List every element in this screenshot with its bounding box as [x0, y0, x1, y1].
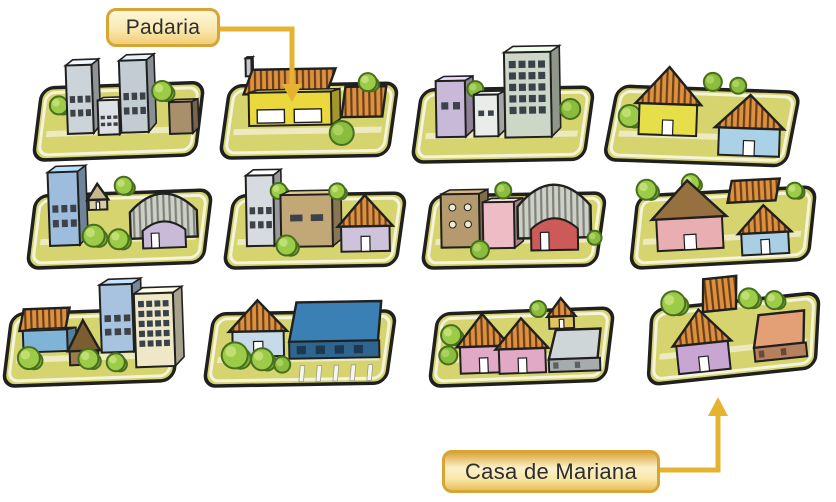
tree-illustration: [329, 183, 347, 200]
bush-illustration: [330, 121, 354, 145]
tree-illustration: [359, 73, 379, 92]
tree-illustration: [636, 179, 659, 200]
bush-illustration: [587, 231, 601, 245]
tower-illustration: [134, 286, 185, 367]
casa-de-mariana-arrow: [658, 415, 718, 470]
tower-illustration: [504, 46, 561, 138]
box-illustration: [548, 328, 602, 372]
tower-illustration: [246, 169, 283, 246]
city-block-3: [410, 45, 595, 162]
tree-illustration: [738, 287, 762, 310]
tower-illustration: [119, 54, 157, 133]
city-blocks-grid: [0, 45, 827, 386]
tree-illustration: [786, 182, 805, 199]
tower-illustration: [441, 189, 489, 247]
roof-illustration: [726, 178, 780, 202]
casa-de-mariana-label: Casa de Mariana: [442, 450, 660, 493]
bush-illustration: [730, 77, 747, 94]
box-illustration: [751, 310, 809, 361]
bush-illustration: [704, 73, 723, 92]
padaria-label: Padaria: [106, 8, 220, 47]
neighborhood-illustration: [0, 0, 836, 502]
city-block-11: [426, 296, 616, 386]
tower-illustration: [474, 91, 506, 137]
city-block-10: [202, 298, 397, 386]
tower-illustration: [169, 99, 199, 134]
neighborhood-figure: Padaria Casa de Mariana: [0, 0, 836, 502]
roof-illustration: [699, 276, 739, 312]
bush-illustration: [560, 99, 580, 119]
bush-illustration: [495, 182, 511, 198]
bush-illustration: [274, 357, 290, 373]
city-block-4: [604, 65, 801, 166]
city-block-1: [30, 52, 207, 160]
casa-de-mariana-block: [638, 267, 827, 384]
tree-illustration: [764, 290, 786, 310]
house-illustration: [650, 178, 728, 251]
tower-illustration: [65, 59, 101, 134]
bush-illustration: [471, 241, 489, 259]
city-block-7: [420, 181, 607, 269]
tree-illustration: [660, 290, 689, 317]
house-illustration: [547, 298, 576, 329]
city-block-5: [24, 161, 215, 268]
house-illustration: [635, 66, 703, 136]
bush-illustration: [439, 346, 458, 365]
bush-illustration: [530, 301, 547, 318]
city-block-8: [626, 168, 820, 269]
city-block-9: [0, 277, 185, 387]
casa-de-mariana-arrowhead-icon: [708, 397, 728, 416]
box-illustration: [288, 301, 382, 359]
house-illustration: [87, 183, 109, 210]
tree-illustration: [114, 176, 135, 195]
city-block-6: [222, 167, 407, 268]
padaria-block: [218, 54, 399, 158]
